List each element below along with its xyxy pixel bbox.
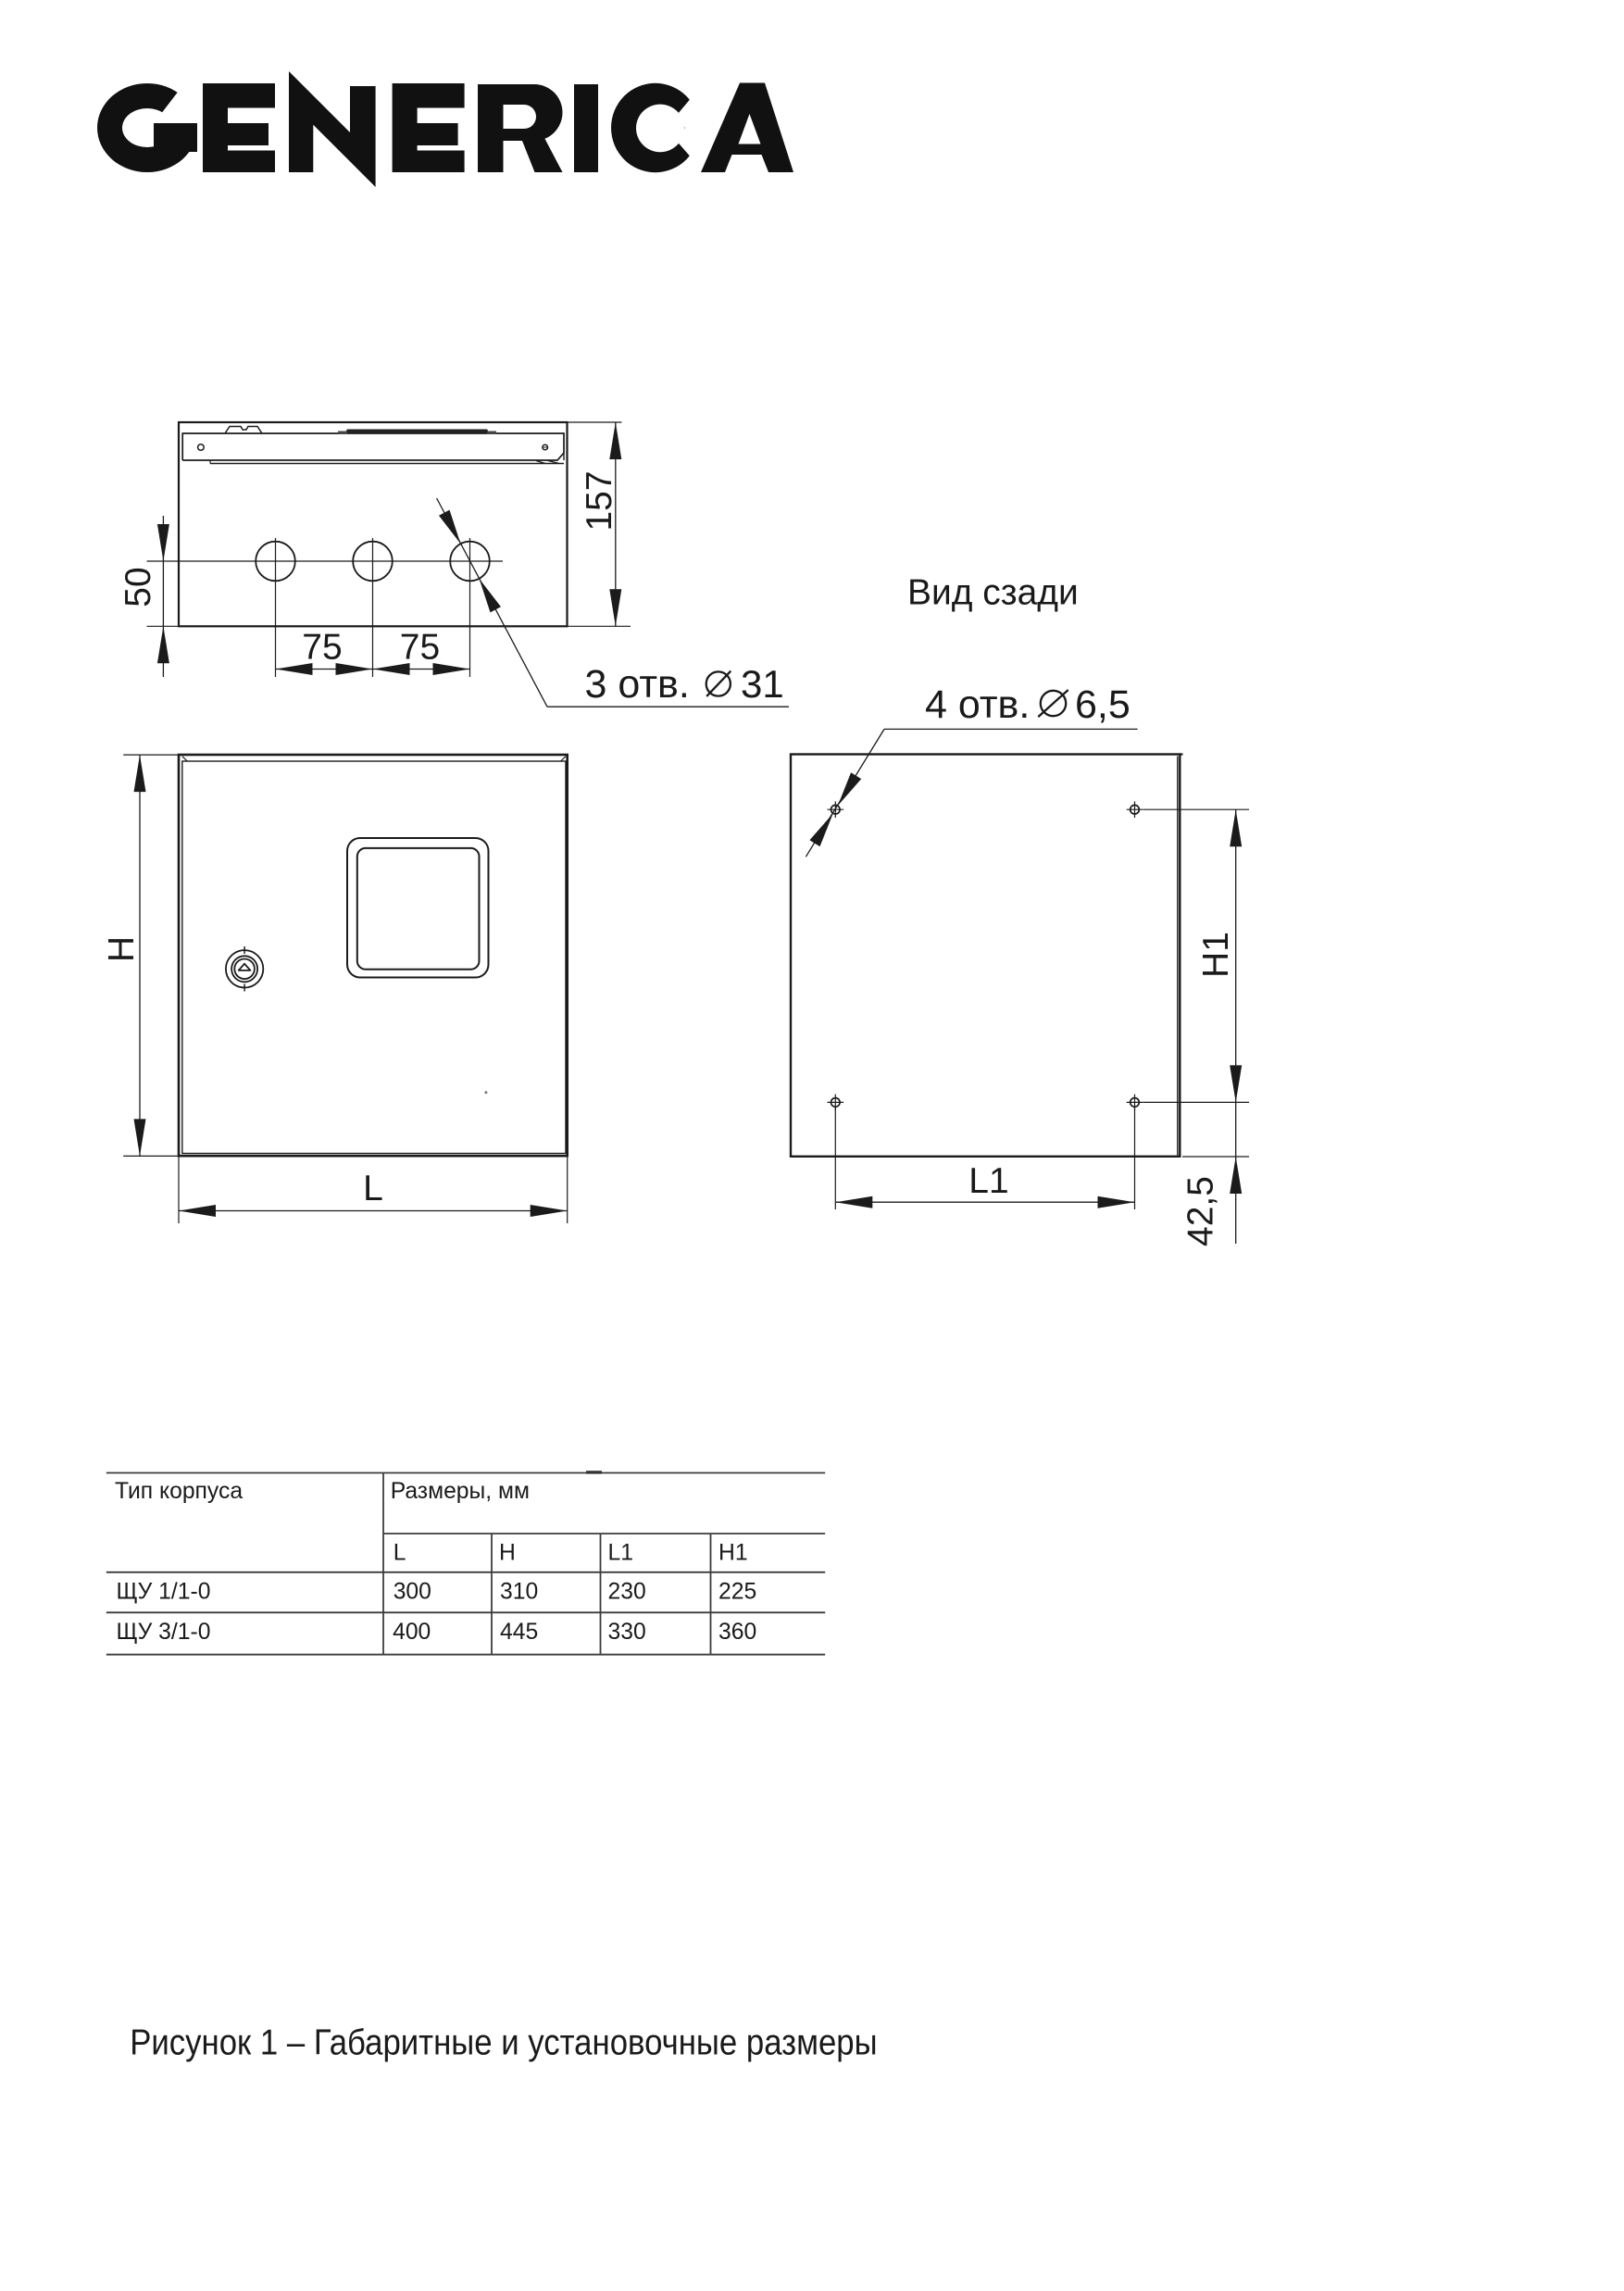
- svg-text:H: H: [102, 936, 142, 962]
- svg-text:50: 50: [119, 567, 158, 607]
- svg-text:Размеры, мм: Размеры, мм: [391, 1479, 530, 1504]
- svg-text:360: 360: [718, 1620, 756, 1645]
- svg-text:445: 445: [500, 1620, 538, 1645]
- svg-text:Вид сзади: Вид сзади: [907, 573, 1079, 613]
- svg-text:H1: H1: [718, 1540, 748, 1565]
- svg-text:4 отв.: 4 отв.: [925, 682, 1030, 727]
- svg-text:Тип корпуса: Тип корпуса: [115, 1479, 243, 1504]
- svg-text:75: 75: [302, 628, 342, 668]
- svg-text:31: 31: [741, 662, 784, 706]
- svg-text:H1: H1: [1196, 932, 1236, 978]
- svg-text:330: 330: [608, 1620, 646, 1645]
- svg-text:75: 75: [400, 628, 440, 668]
- svg-text:ЩУ 3/1-0: ЩУ 3/1-0: [117, 1620, 211, 1645]
- svg-text:L1: L1: [968, 1161, 1008, 1201]
- svg-text:ЩУ 1/1-0: ЩУ 1/1-0: [117, 1580, 211, 1605]
- svg-text:3 отв.: 3 отв.: [585, 662, 690, 707]
- svg-text:H: H: [499, 1540, 516, 1565]
- svg-text:Рисунок 1 – Габаритные и устан: Рисунок 1 – Габаритные и установочные ра…: [130, 2022, 877, 2062]
- svg-text:230: 230: [608, 1580, 646, 1605]
- svg-text:42,5: 42,5: [1181, 1176, 1221, 1246]
- svg-text:L: L: [363, 1169, 383, 1208]
- svg-text:225: 225: [718, 1580, 756, 1605]
- svg-text:300: 300: [394, 1580, 431, 1605]
- svg-text:L: L: [394, 1540, 406, 1565]
- svg-text:310: 310: [500, 1580, 538, 1605]
- svg-text:6,5: 6,5: [1075, 682, 1131, 727]
- svg-text:157: 157: [580, 470, 619, 531]
- svg-text:400: 400: [393, 1620, 431, 1645]
- svg-text:L1: L1: [608, 1540, 633, 1565]
